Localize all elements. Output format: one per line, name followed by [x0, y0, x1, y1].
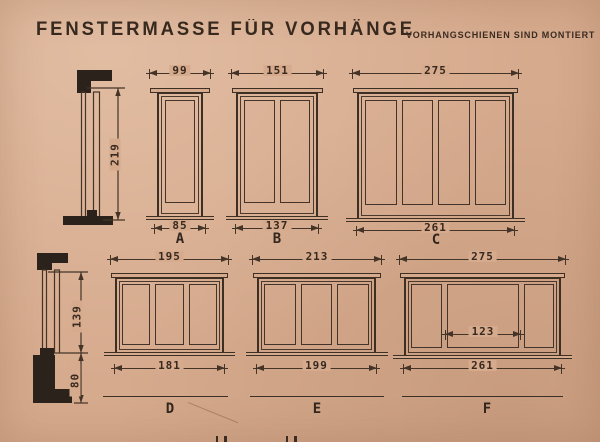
profile-lower-dim: 80 [70, 365, 81, 397]
window-pane [411, 284, 442, 348]
dim-line-bottom-b: 137 [232, 228, 322, 229]
dim-line-bottom-e: 199 [253, 368, 380, 369]
window-label-e: E [307, 401, 327, 417]
dim-value: 275 [421, 65, 450, 76]
dim-line-bottom-f: 261 [400, 368, 565, 369]
profile-section-short-window [28, 250, 100, 412]
dim-value: 85 [169, 220, 190, 231]
window-sill-d [104, 352, 235, 356]
cornice-bracket-shape [37, 253, 68, 270]
dim-value: 99 [169, 65, 190, 76]
window-frame-c [357, 92, 514, 220]
window-pane [165, 100, 195, 203]
window-label-a: A [170, 231, 190, 247]
page-title: FENSTERMASSE FÜR VORHÄNGE [36, 19, 415, 41]
window-frame-f [404, 277, 561, 357]
window-pane [402, 100, 434, 205]
label-underline-f [402, 396, 563, 397]
cornice-bracket-shape [77, 70, 112, 93]
dim-value: 199 [302, 360, 331, 371]
window-pane [189, 284, 217, 345]
dim-value: 261 [468, 360, 497, 371]
dim-value: 137 [263, 220, 292, 231]
sill-notch-shape [40, 348, 54, 355]
profile-upper-dim: 139 [72, 301, 83, 333]
dim-line-top-f: 275 [396, 259, 569, 260]
paper-crease-line [188, 402, 238, 423]
window-pane [301, 284, 333, 345]
dim-value: 123 [469, 326, 498, 337]
dim-value: 195 [155, 251, 184, 262]
profile-height-dim: 219 [110, 139, 121, 171]
dim-line-bottom-c: 261 [353, 230, 518, 231]
window-pane [122, 284, 150, 345]
window-pane [264, 284, 296, 345]
dim-line-bottom-a: 85 [151, 228, 209, 229]
window-sill-e [246, 352, 388, 356]
window-frame-e [257, 277, 376, 354]
window-label-c: C [426, 232, 446, 248]
window-pane [244, 100, 275, 203]
dim-line-top-e: 213 [249, 259, 385, 260]
parapet-shape [33, 355, 72, 403]
window-pane-middle [447, 284, 519, 348]
window-pane [475, 100, 507, 205]
dim-line-top-d: 195 [107, 259, 232, 260]
window-pane [524, 284, 555, 348]
dim-value: 151 [263, 65, 292, 76]
label-underline-e [250, 396, 384, 397]
window-pane [155, 284, 183, 345]
dim-line-top-b: 151 [228, 73, 327, 74]
window-label-b: B [267, 231, 287, 247]
label-underline-d [103, 396, 228, 397]
cropped-glyph-mark [286, 436, 303, 442]
window-pane [280, 100, 311, 203]
window-pane [337, 284, 369, 345]
dim-value: 181 [155, 360, 184, 371]
dim-line-top-a: 99 [146, 73, 214, 74]
window-frame-b [236, 92, 318, 218]
scanned-drawing-page: FENSTERMASSE FÜR VORHÄNGE VORHANGSCHIENE… [0, 0, 600, 442]
sill-notch-shape [87, 210, 97, 217]
window-pane [365, 100, 397, 205]
cropped-glyph-mark [216, 436, 233, 442]
window-frame-a [157, 92, 203, 218]
dim-value: 275 [468, 251, 497, 262]
dim-line-top-c: 275 [349, 73, 522, 74]
dim-line-middle-f: 123 [442, 334, 524, 335]
page-subtitle: VORHANGSCHIENEN SIND MONTIERT [406, 30, 595, 40]
profile-section-tall-window [55, 65, 140, 232]
window-label-d: D [160, 401, 180, 417]
dim-value: 213 [303, 251, 332, 262]
window-label-f: F [477, 401, 497, 417]
window-pane [438, 100, 470, 205]
window-frame-d [115, 277, 224, 354]
dim-line-bottom-d: 181 [111, 368, 228, 369]
